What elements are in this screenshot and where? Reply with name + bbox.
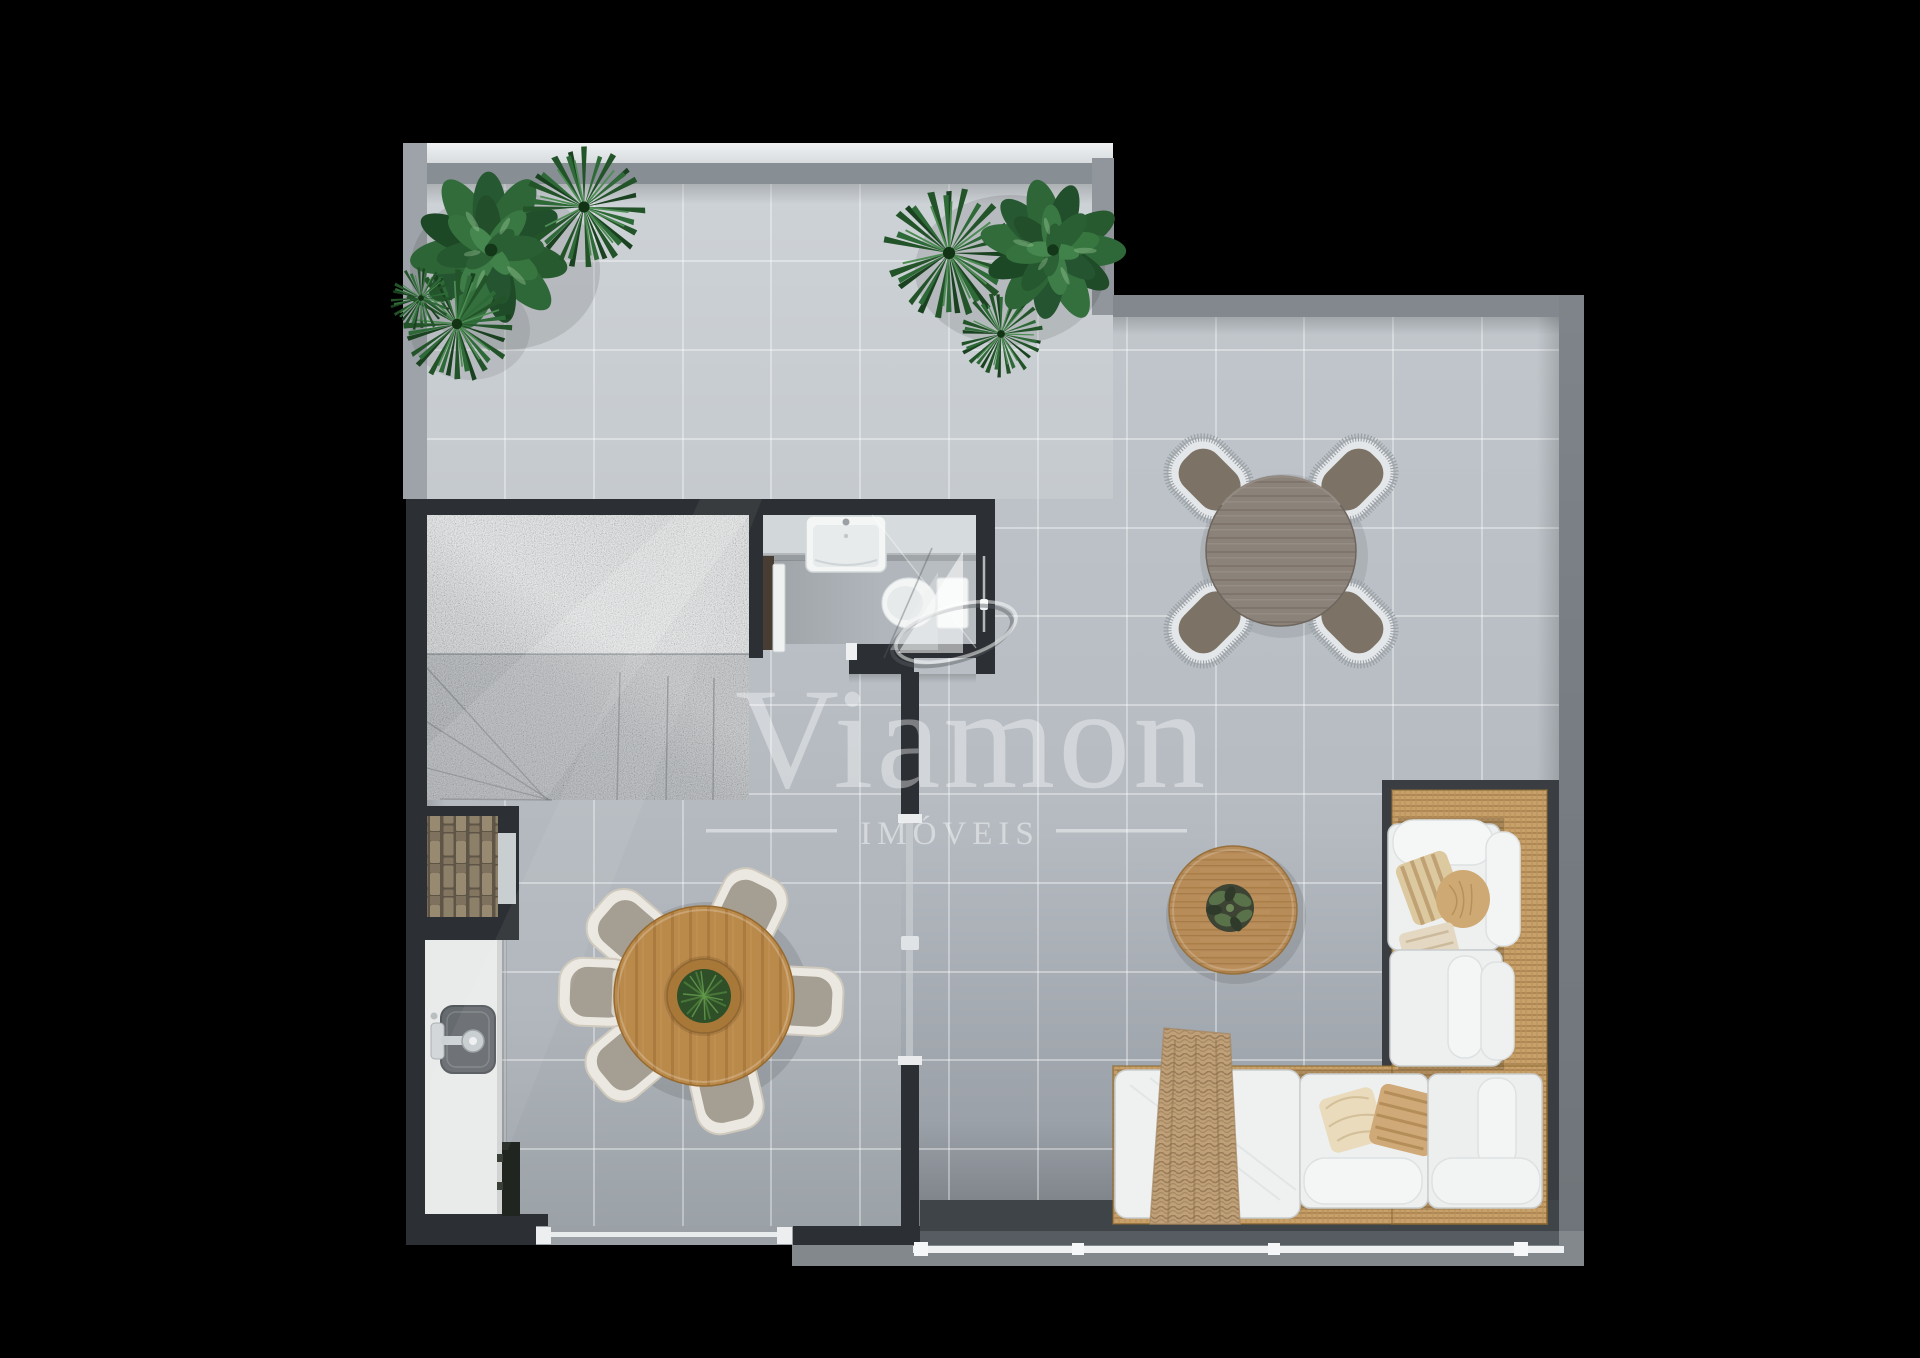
svg-text:Viamon: Viamon xyxy=(735,660,1208,819)
svg-text:IMÓVEIS: IMÓVEIS xyxy=(860,814,1040,852)
